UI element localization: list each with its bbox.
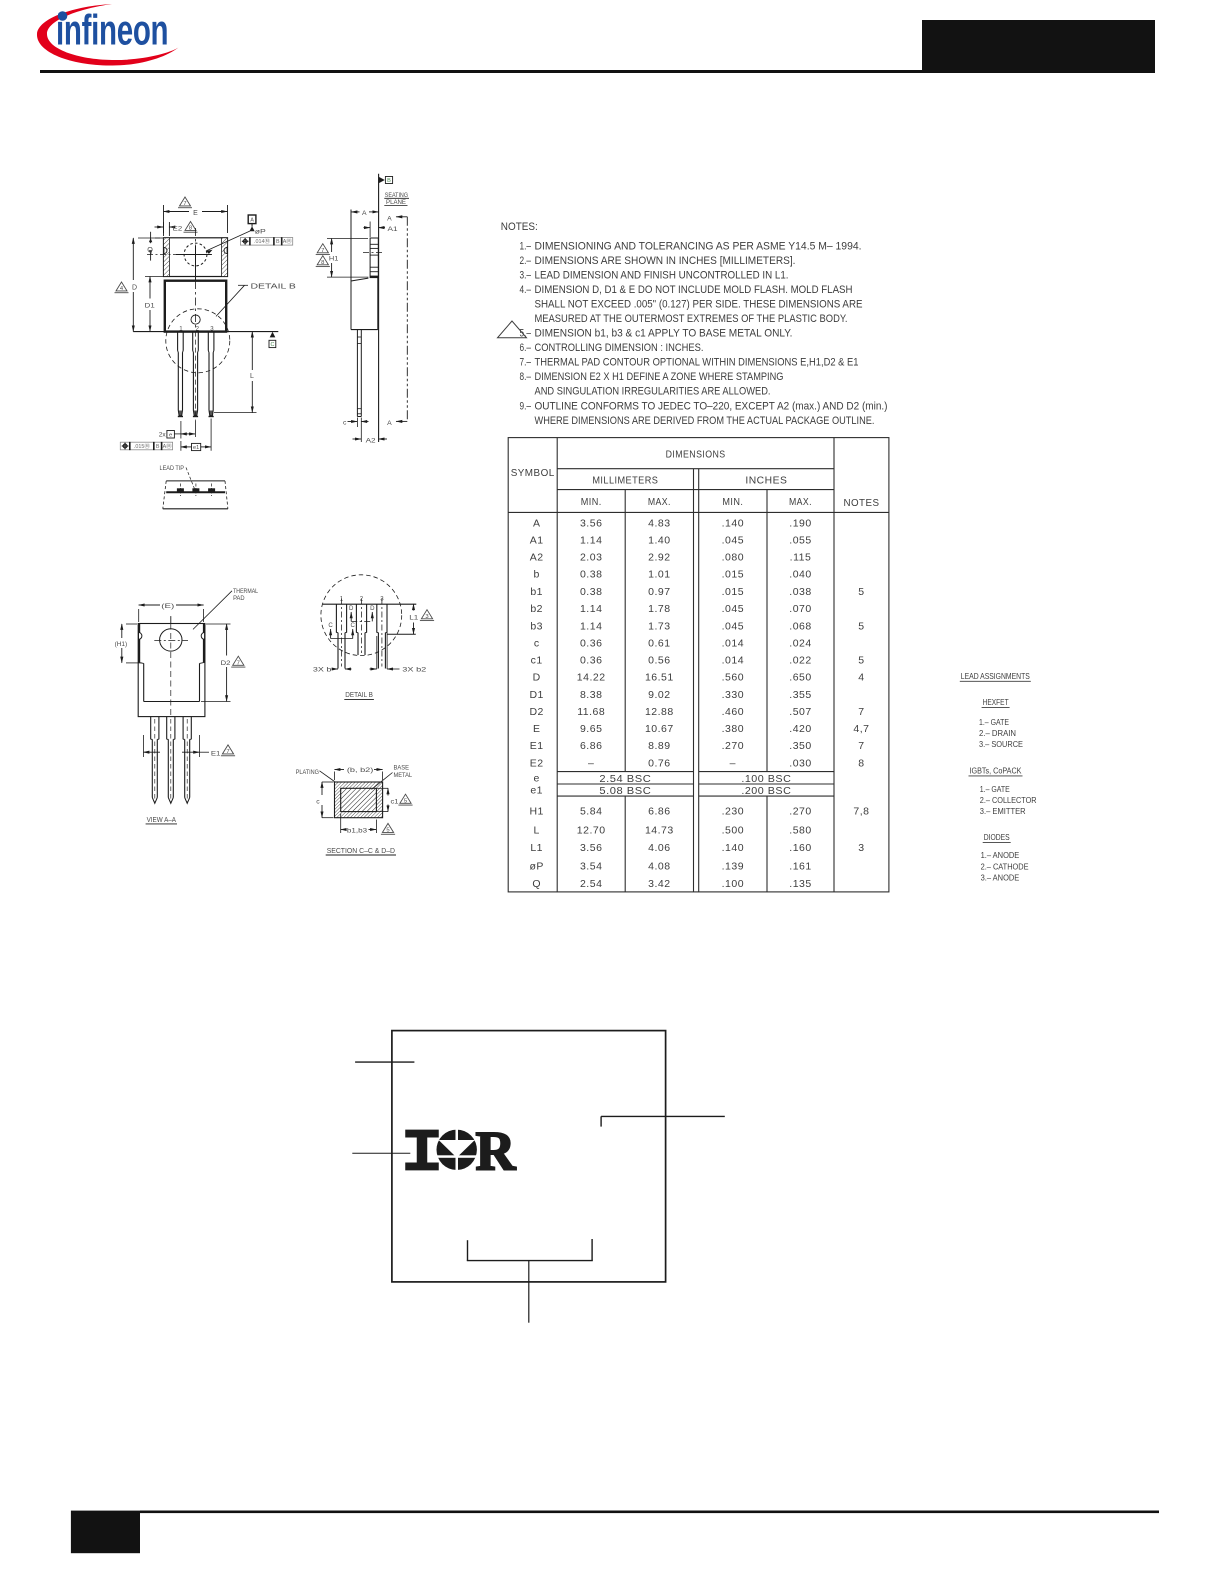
svg-text:3X b: 3X b [313, 666, 332, 673]
svg-text:e1: e1 [530, 785, 543, 797]
svg-text:8.89: 8.89 [648, 740, 670, 752]
svg-text:1.14: 1.14 [580, 534, 602, 546]
svg-text:2x: 2x [159, 432, 167, 439]
svg-text:CONTROLLING DIMENSION : INCHES: CONTROLLING DIMENSION : INCHES. [535, 342, 704, 354]
svg-text:METAL: METAL [394, 772, 413, 779]
svg-text:DIMENSION E2 X H1 DEFINE A ZON: DIMENSION E2 X H1 DEFINE A ZONE WHERE ST… [535, 371, 784, 383]
svg-text:DIMENSIONS: DIMENSIONS [666, 449, 726, 461]
svg-text:2.– CATHODE: 2.– CATHODE [981, 861, 1029, 871]
svg-text:8.–: 8.– [520, 371, 532, 383]
svg-text:MIN.: MIN. [722, 496, 743, 508]
svg-text:D2: D2 [529, 706, 543, 718]
svg-text:b3: b3 [530, 620, 543, 632]
svg-text:1.01: 1.01 [648, 569, 670, 581]
svg-text:A1: A1 [530, 534, 544, 546]
svg-text:c: c [316, 798, 320, 805]
svg-text:1.78: 1.78 [648, 603, 670, 615]
svg-text:E2: E2 [173, 226, 183, 233]
svg-text:10.67: 10.67 [645, 723, 674, 735]
svg-text:infineon: infineon [56, 6, 168, 54]
svg-text:.045: .045 [722, 603, 744, 615]
svg-text:.330: .330 [722, 689, 744, 701]
svg-text:.500: .500 [722, 825, 744, 837]
svg-text:2.03: 2.03 [580, 551, 602, 563]
svg-text:AⓂ: AⓂ [163, 442, 173, 450]
svg-text:0.97: 0.97 [648, 586, 670, 598]
svg-text:LEAD TIP: LEAD TIP [160, 465, 185, 472]
svg-text:Q: Q [532, 878, 541, 890]
svg-text:PLANE: PLANE [386, 199, 406, 206]
svg-text:A2: A2 [530, 551, 544, 563]
svg-text:DIMENSIONS ARE SHOWN IN INCHES: DIMENSIONS ARE SHOWN IN INCHES [MILLIMET… [535, 255, 796, 267]
svg-text:1.– GATE: 1.– GATE [980, 784, 1010, 794]
svg-text:H1: H1 [329, 255, 339, 262]
svg-text:DIODES: DIODES [984, 832, 1010, 842]
svg-text:.014Ⓜ: .014Ⓜ [254, 237, 270, 245]
svg-text:D: D [533, 672, 541, 684]
svg-text:2.– DRAIN: 2.– DRAIN [979, 728, 1016, 738]
svg-text:.460: .460 [722, 706, 744, 718]
svg-text:.100 BSC: .100 BSC [741, 773, 791, 785]
svg-text:1.73: 1.73 [648, 620, 670, 632]
svg-text:.030: .030 [789, 758, 811, 770]
svg-text:.160: .160 [789, 842, 811, 854]
svg-text:.068: .068 [789, 620, 811, 632]
svg-text:L: L [250, 373, 254, 380]
svg-text:.014: .014 [722, 637, 744, 649]
svg-text:.100: .100 [722, 878, 744, 890]
svg-text:0.38: 0.38 [580, 586, 602, 598]
svg-text:6.86: 6.86 [648, 806, 670, 818]
svg-text:4,7: 4,7 [853, 723, 869, 735]
svg-text:5: 5 [858, 586, 864, 598]
svg-text:4.83: 4.83 [648, 517, 670, 529]
svg-text:.015Ⓜ: .015Ⓜ [134, 442, 150, 450]
svg-text:E: E [533, 723, 541, 735]
svg-text:.045: .045 [722, 534, 744, 546]
svg-text:D: D [132, 284, 137, 291]
svg-text:e: e [169, 432, 172, 438]
svg-text:INCHES: INCHES [745, 474, 787, 486]
svg-text:A: A [387, 420, 392, 427]
svg-text:6.–: 6.– [520, 342, 532, 354]
svg-text:D1: D1 [145, 302, 156, 309]
svg-text:4.06: 4.06 [648, 842, 670, 854]
svg-text:.270: .270 [722, 740, 744, 752]
svg-text:1.40: 1.40 [648, 534, 670, 546]
svg-text:0.61: 0.61 [648, 637, 670, 649]
svg-text:.015: .015 [722, 569, 744, 581]
svg-text:1.– ANODE: 1.– ANODE [981, 850, 1020, 860]
svg-text:b1,b3: b1,b3 [347, 827, 368, 834]
svg-text:PLATING: PLATING [296, 769, 319, 776]
svg-text:E1: E1 [530, 740, 544, 752]
svg-text:7: 7 [183, 201, 186, 207]
svg-text:b: b [534, 569, 540, 581]
svg-text:7,8: 7,8 [853, 806, 869, 818]
svg-text:9.–: 9.– [520, 401, 532, 413]
svg-text:DIMENSION D, D1 & E DO NOT INC: DIMENSION D, D1 & E DO NOT INCLUDE MOLD … [535, 284, 853, 296]
svg-text:SECTION C–C & D–D: SECTION C–C & D–D [327, 848, 395, 855]
svg-text:HEXFET: HEXFET [983, 697, 1009, 707]
svg-text:Q: Q [147, 245, 153, 254]
svg-text:MAX.: MAX. [648, 496, 671, 508]
svg-text:.135: .135 [789, 878, 811, 890]
svg-text:SYMBOL: SYMBOL [511, 467, 555, 479]
svg-text:5: 5 [858, 620, 864, 632]
svg-text:3.– SOURCE: 3.– SOURCE [979, 739, 1023, 749]
svg-text:A1: A1 [388, 226, 399, 233]
svg-text:–: – [730, 758, 736, 770]
svg-text:VIEW A–A: VIEW A–A [147, 817, 177, 824]
svg-text:14.73: 14.73 [645, 825, 674, 837]
svg-text:2.–: 2.– [520, 255, 532, 267]
svg-text:.055: .055 [789, 534, 811, 546]
svg-text:8: 8 [858, 758, 864, 770]
svg-text:.022: .022 [789, 655, 811, 667]
svg-text:WHERE DIMENSIONS ARE DERIVED F: WHERE DIMENSIONS ARE DERIVED FROM THE AC… [535, 415, 875, 427]
svg-text:.650: .650 [789, 672, 811, 684]
svg-text:D: D [370, 605, 375, 612]
svg-text:c: c [343, 420, 347, 427]
svg-text:C: C [350, 622, 355, 629]
svg-text:.014: .014 [722, 655, 744, 667]
svg-text:.350: .350 [789, 740, 811, 752]
svg-text:DETAIL B: DETAIL B [345, 692, 373, 699]
svg-text:.161: .161 [789, 861, 811, 873]
svg-text:.200 BSC: .200 BSC [741, 785, 791, 797]
svg-text:14.22: 14.22 [577, 672, 606, 684]
svg-text:7: 7 [321, 248, 324, 254]
svg-text:NOTES: NOTES [843, 497, 879, 509]
svg-text:5.84: 5.84 [580, 806, 602, 818]
svg-text:B: B [156, 444, 160, 450]
svg-text:E: E [193, 210, 198, 217]
svg-text:3.56: 3.56 [580, 517, 602, 529]
svg-text:OUTLINE CONFORMS TO JEDEC TO–2: OUTLINE CONFORMS TO JEDEC TO–220, EXCEPT… [535, 401, 888, 413]
svg-text:0.56: 0.56 [648, 655, 670, 667]
svg-text:4.08: 4.08 [648, 861, 670, 873]
svg-text:7: 7 [226, 749, 229, 755]
svg-text:.080: .080 [722, 551, 744, 563]
svg-text:2.54 BSC: 2.54 BSC [599, 773, 651, 785]
svg-text:(H1): (H1) [115, 641, 128, 648]
svg-text:.045: .045 [722, 620, 744, 632]
svg-text:5: 5 [858, 655, 864, 667]
svg-text:SHALL NOT EXCEED .005" (0.127): SHALL NOT EXCEED .005" (0.127) PER SIDE.… [535, 298, 863, 310]
svg-text:2.– COLLECTOR: 2.– COLLECTOR [980, 795, 1037, 805]
svg-text:.140: .140 [722, 517, 744, 529]
svg-text:.190: .190 [789, 517, 811, 529]
svg-text:PAD: PAD [233, 595, 245, 602]
svg-text:.420: .420 [789, 723, 811, 735]
svg-text:.580: .580 [789, 825, 811, 837]
svg-text:D2: D2 [221, 660, 231, 667]
svg-text:LEAD ASSIGNMENTS: LEAD ASSIGNMENTS [961, 671, 1030, 681]
svg-text:H1: H1 [529, 806, 543, 818]
svg-text:8: 8 [189, 225, 192, 231]
svg-text:E1: E1 [211, 751, 221, 758]
svg-text:A: A [533, 517, 541, 529]
svg-text:3.54: 3.54 [580, 861, 602, 873]
svg-text:3.– ANODE: 3.– ANODE [981, 872, 1020, 882]
svg-text:R: R [476, 1121, 517, 1183]
svg-text:MIN.: MIN. [581, 496, 602, 508]
svg-text:.040: .040 [789, 569, 811, 581]
svg-text:9.02: 9.02 [648, 689, 670, 701]
svg-text:THERMAL: THERMAL [233, 588, 258, 595]
svg-text:3X b2: 3X b2 [402, 666, 427, 673]
svg-text:1.–: 1.– [520, 240, 532, 252]
svg-text:3.56: 3.56 [580, 842, 602, 854]
svg-text:0.38: 0.38 [580, 569, 602, 581]
svg-text:16.51: 16.51 [645, 672, 674, 684]
svg-text:AND SINGULATION IRREGULARITIES: AND SINGULATION IRREGULARITIES ARE ALLOW… [535, 385, 771, 397]
svg-text:2.92: 2.92 [648, 551, 670, 563]
svg-text:SEATING: SEATING [385, 192, 408, 199]
svg-text:.230: .230 [722, 806, 744, 818]
svg-text:12.70: 12.70 [577, 825, 606, 837]
svg-text:0.36: 0.36 [580, 637, 602, 649]
svg-text:3.42: 3.42 [648, 878, 670, 890]
svg-text:7.–: 7.– [520, 356, 532, 368]
svg-text:BASE: BASE [394, 765, 410, 772]
svg-text:(E): (E) [161, 603, 174, 610]
svg-text:DETAIL B: DETAIL B [251, 284, 297, 291]
svg-text:.139: .139 [722, 861, 744, 873]
svg-text:.380: .380 [722, 723, 744, 735]
svg-text:MAX.: MAX. [789, 496, 812, 508]
svg-text:B: B [276, 239, 280, 245]
svg-text:5.08 BSC: 5.08 BSC [599, 785, 651, 797]
svg-text:7: 7 [858, 706, 864, 718]
svg-text:MILLIMETERS: MILLIMETERS [592, 474, 658, 486]
svg-text:11.68: 11.68 [577, 706, 605, 718]
svg-text:3: 3 [858, 842, 864, 854]
svg-text:L1: L1 [530, 842, 543, 854]
svg-text:3.–: 3.– [520, 269, 532, 281]
svg-text:7: 7 [237, 660, 240, 666]
svg-text:MEASURED AT THE OUTERMOST EXTR: MEASURED AT THE OUTERMOST EXTREMES OF TH… [535, 313, 848, 325]
svg-text:L: L [534, 825, 540, 837]
svg-text:12.88: 12.88 [645, 706, 674, 718]
svg-text:0.76: 0.76 [648, 758, 670, 770]
svg-text:e: e [534, 772, 540, 784]
svg-text:D1: D1 [529, 689, 543, 701]
svg-text:0.36: 0.36 [580, 655, 602, 667]
svg-text:4: 4 [858, 672, 864, 684]
svg-text:c1: c1 [391, 798, 400, 805]
svg-text:E2: E2 [530, 758, 544, 770]
svg-text:D: D [349, 605, 354, 612]
svg-text:–: – [588, 758, 594, 770]
svg-text:.115: .115 [790, 551, 812, 563]
svg-text:.270: .270 [789, 806, 811, 818]
svg-text:3.– EMITTER: 3.– EMITTER [980, 806, 1026, 816]
svg-text:4.–: 4.– [520, 284, 532, 296]
svg-text:1.14: 1.14 [580, 603, 602, 615]
svg-text:A: A [250, 218, 254, 224]
svg-text:b1: b1 [530, 586, 543, 598]
svg-text:A: A [362, 210, 367, 217]
svg-text:b2: b2 [530, 603, 543, 615]
svg-text:.140: .140 [722, 842, 744, 854]
svg-text:IGBTs, CoPACK: IGBTs, CoPACK [970, 765, 1022, 775]
svg-text:C: C [270, 342, 274, 348]
svg-text:c: c [534, 637, 540, 649]
svg-text:DIMENSION b1, b3 & c1 APPLY TO: DIMENSION b1, b3 & c1 APPLY TO BASE META… [535, 327, 793, 339]
svg-text:.024: .024 [789, 637, 811, 649]
svg-text:C: C [328, 622, 333, 629]
svg-text:(b, b2): (b, b2) [347, 767, 373, 774]
svg-text:øP: øP [255, 228, 266, 235]
svg-text:DIMENSIONING AND TOLERANCING A: DIMENSIONING AND TOLERANCING AS PER ASME… [535, 240, 862, 252]
svg-text:6.86: 6.86 [580, 740, 602, 752]
svg-text:c1: c1 [531, 655, 543, 667]
svg-text:7: 7 [858, 740, 864, 752]
svg-text:A2: A2 [366, 437, 377, 444]
svg-text:L1: L1 [409, 614, 419, 621]
svg-text:1.14: 1.14 [580, 620, 602, 632]
svg-text:THERMAL PAD CONTOUR OPTIONAL W: THERMAL PAD CONTOUR OPTIONAL WITHIN DIME… [535, 356, 859, 368]
svg-text:AⓂ: AⓂ [283, 237, 293, 245]
svg-text:.038: .038 [789, 586, 811, 598]
svg-text:.070: .070 [789, 603, 811, 615]
svg-text:B: B [387, 178, 391, 184]
svg-text:e1: e1 [193, 445, 199, 451]
svg-text:øP: øP [529, 861, 543, 873]
svg-text:.507: .507 [789, 706, 811, 718]
svg-text:A: A [387, 215, 392, 222]
svg-text:2.54: 2.54 [580, 878, 602, 890]
svg-text:8.38: 8.38 [580, 689, 602, 701]
svg-text:NOTES:: NOTES: [501, 221, 538, 233]
svg-text:1.– GATE: 1.– GATE [979, 717, 1009, 727]
svg-text:9.65: 9.65 [580, 723, 602, 735]
svg-text:.355: .355 [789, 689, 811, 701]
svg-text:LEAD DIMENSION AND FINISH UNCO: LEAD DIMENSION AND FINISH UNCONTROLLED I… [535, 269, 789, 281]
svg-text:.015: .015 [722, 586, 744, 598]
svg-text:.560: .560 [722, 672, 744, 684]
